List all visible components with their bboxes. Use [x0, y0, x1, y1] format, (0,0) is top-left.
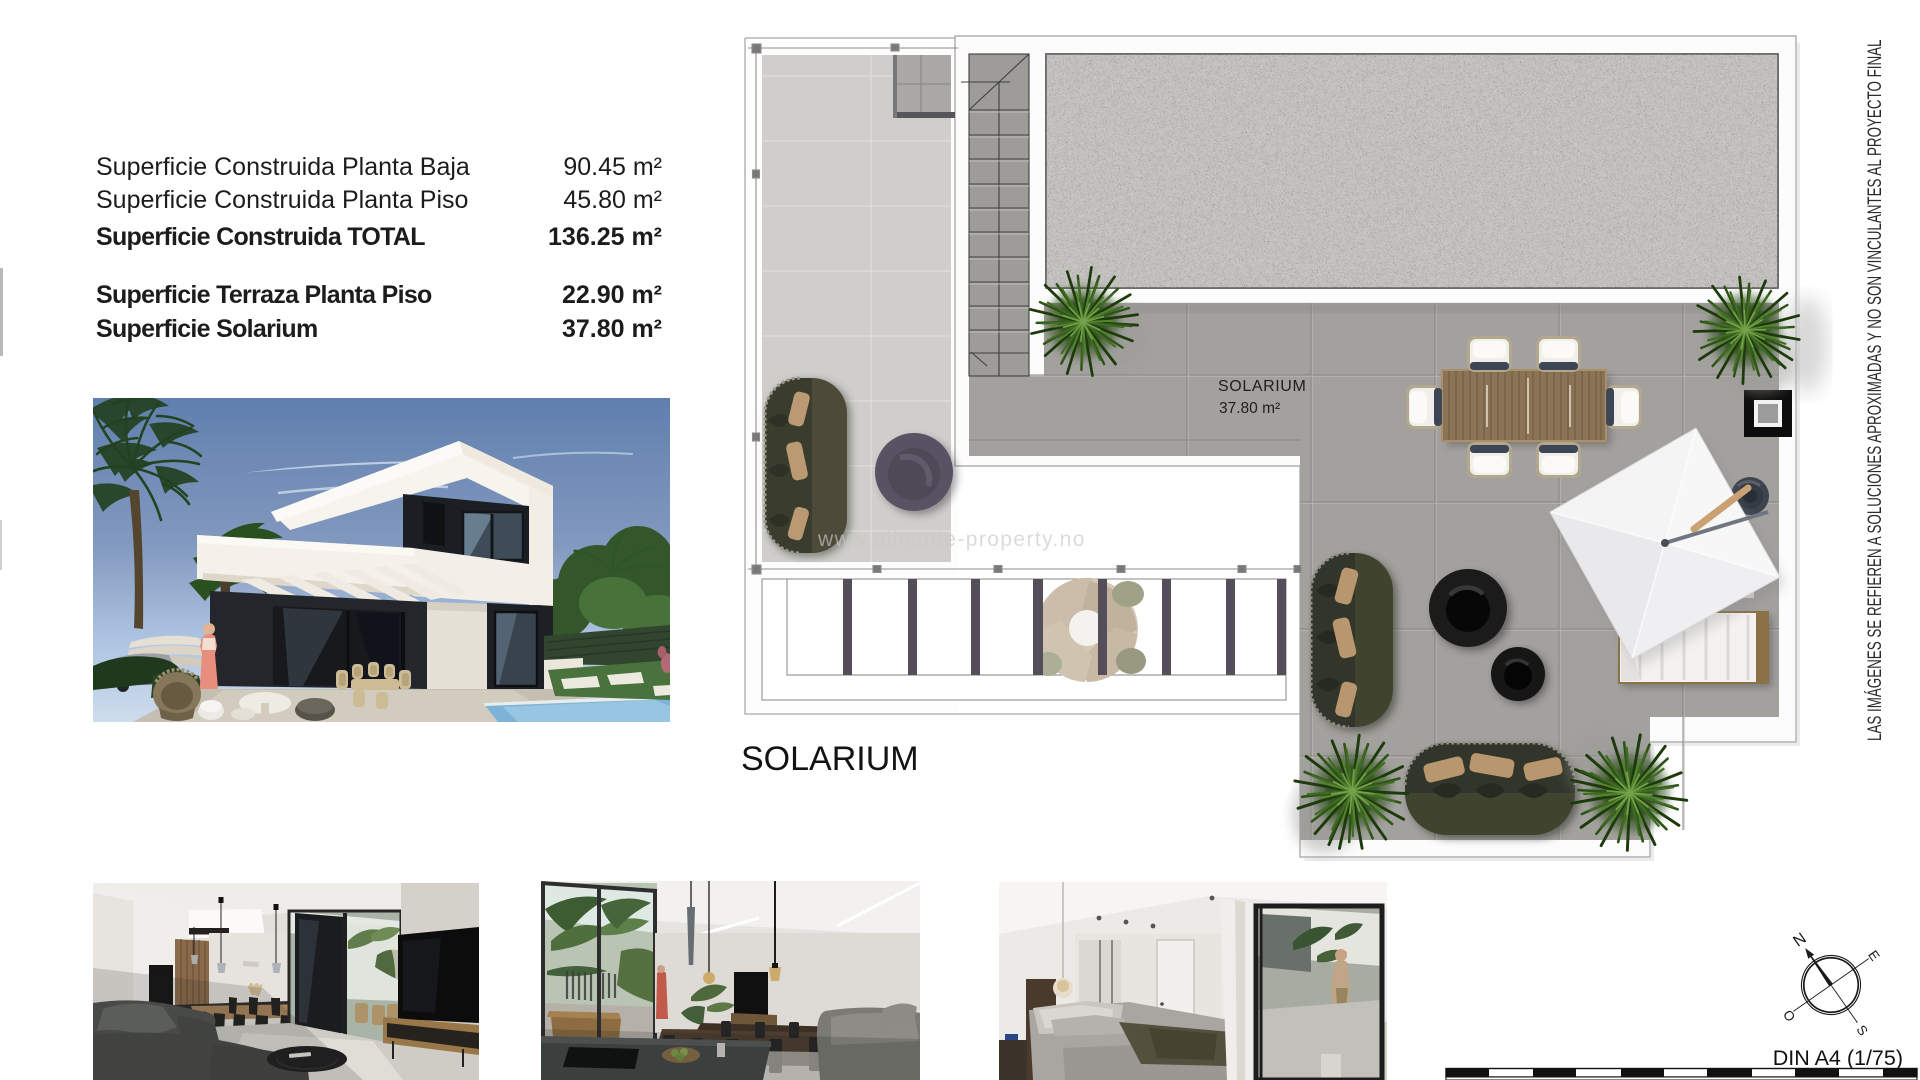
svg-text:LAS IMÁGENES SE REFIEREN A SOL: LAS IMÁGENES SE REFIEREN A SOLUCIONES AP…	[1864, 39, 1886, 741]
svg-text:N: N	[1790, 930, 1809, 951]
svg-text:DIN A4 (1/75): DIN A4 (1/75)	[1773, 1046, 1903, 1070]
svg-text:37.80 m²: 37.80 m²	[1219, 400, 1280, 417]
svg-text:SOLARIUM: SOLARIUM	[741, 740, 919, 778]
svg-text:S: S	[1853, 1022, 1870, 1038]
svg-text:SOLARIUM: SOLARIUM	[1218, 378, 1306, 395]
svg-text:E: E	[1865, 948, 1882, 964]
svg-text:www.alicante-property.no: www.alicante-property.no	[817, 528, 1086, 551]
